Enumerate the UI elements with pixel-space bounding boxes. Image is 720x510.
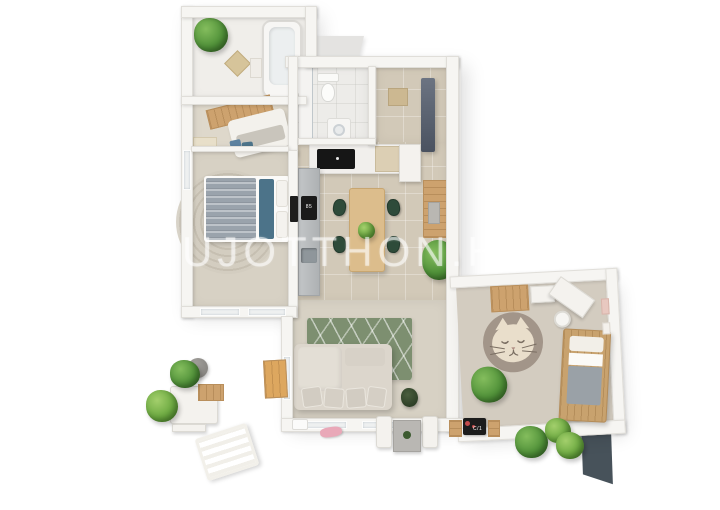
paw-print-icon xyxy=(465,421,470,426)
potted-plant-bathroom-icon xyxy=(194,18,228,52)
master-bed-pillow-2 xyxy=(276,211,288,238)
kids-bed-pillow xyxy=(569,336,604,353)
terrace-bush-2 xyxy=(146,390,178,422)
sofa-seat-cushion-1 xyxy=(301,386,324,409)
wall-kitchen-master-divider xyxy=(288,150,298,318)
terrace-table-tray xyxy=(198,384,224,401)
kitchen-counter-wood-end xyxy=(375,146,400,172)
master-bed-throw xyxy=(259,179,274,239)
entry-doormat: C/1 xyxy=(463,418,486,435)
kids-bed-blanket xyxy=(566,366,602,406)
wall-control-panel xyxy=(292,419,308,430)
terrace-bush-1 xyxy=(170,360,200,388)
toilet-tank xyxy=(317,73,339,82)
doormat-text: C/1 xyxy=(473,427,482,432)
window-left-wall xyxy=(183,150,191,190)
kids-bed-sheet xyxy=(568,353,603,367)
outdoor-chair-1 xyxy=(376,416,392,448)
wall-bathroom-main-right xyxy=(368,66,376,146)
towel xyxy=(250,58,262,78)
window-master-1 xyxy=(200,308,240,316)
terrace-bush-3 xyxy=(515,426,548,458)
hallway-top-floor xyxy=(376,66,446,144)
kitchen-sink xyxy=(301,248,317,263)
cooktop-dot xyxy=(336,157,339,160)
wall-top-bathroom xyxy=(181,6,317,18)
toilet-bowl xyxy=(321,83,335,102)
terrace-bench xyxy=(172,424,206,432)
outdoor-table-plant-icon xyxy=(403,431,411,439)
bath-mat xyxy=(388,88,408,106)
entry-mat-wood-left xyxy=(449,420,462,437)
oven-front: 85 xyxy=(301,196,317,220)
cat-rug xyxy=(480,310,545,375)
window-master-2 xyxy=(248,308,286,316)
small-dark-plant-icon xyxy=(401,388,418,407)
outdoor-chair-2 xyxy=(422,416,438,448)
entry-mat-wood-right xyxy=(488,420,500,437)
door-mat-wood xyxy=(263,359,288,398)
hall-wardrobe-blue xyxy=(421,78,435,152)
oven-display: 85 xyxy=(301,205,317,210)
master-bed-pillow-1 xyxy=(276,180,288,207)
kids-poster-2 xyxy=(602,322,611,334)
kitchen-tall-cabinet xyxy=(399,144,421,182)
kids-wardrobe xyxy=(490,284,529,312)
floor-plan-render: 85 xyxy=(0,0,720,510)
master-bed-duvet xyxy=(206,178,256,240)
sofa-chaise xyxy=(298,347,342,391)
wall-bathroom-main-left xyxy=(288,56,298,156)
sofa xyxy=(294,344,392,410)
kids-poster-1 xyxy=(601,298,610,314)
wall-nook-divider xyxy=(191,146,289,152)
wall-bathroom-main-bottom xyxy=(298,138,376,145)
sofa-seat-cushion-4 xyxy=(366,386,388,408)
terrace-bush-5 xyxy=(556,432,584,459)
kitchen-counter-left xyxy=(298,168,320,296)
master-bed xyxy=(204,176,290,242)
sofa-back-cushion xyxy=(345,348,385,366)
washer-door xyxy=(333,124,345,136)
sofa-seat-cushion-3 xyxy=(345,387,367,409)
tv-panel xyxy=(290,196,298,222)
sofa-seat-cushion-2 xyxy=(323,387,345,409)
sideboard-decor xyxy=(428,202,440,224)
table-plant-icon xyxy=(358,222,375,239)
kids-bed xyxy=(558,328,611,422)
